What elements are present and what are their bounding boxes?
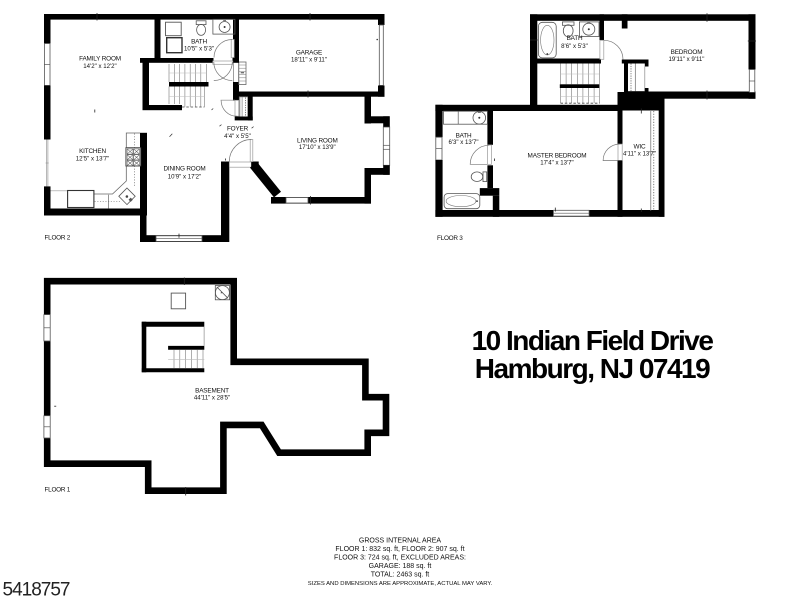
svg-text:FLOOR 1: FLOOR 1	[45, 487, 71, 494]
svg-text:10 Indian Field Drive: 10 Indian Field Drive	[472, 325, 714, 356]
svg-text:FAMILY ROOM: FAMILY ROOM	[79, 56, 121, 63]
svg-text:FLOOR 2: FLOOR 2	[45, 235, 71, 242]
svg-text:BATH: BATH	[567, 35, 583, 42]
svg-text:10'5" x 5'3": 10'5" x 5'3"	[184, 46, 214, 53]
svg-text:44'11" x 28'5": 44'11" x 28'5"	[194, 394, 230, 401]
svg-text:5418757: 5418757	[3, 580, 70, 600]
svg-text:TOTAL: 2463 sq. ft: TOTAL: 2463 sq. ft	[371, 572, 430, 579]
svg-text:FLOOR 1: 832 sq. ft, FLOOR 2:: FLOOR 1: 832 sq. ft, FLOOR 2: 907 sq. ft	[335, 546, 464, 553]
svg-text:GARAGE: 188 sq. ft: GARAGE: 188 sq. ft	[369, 563, 432, 570]
svg-text:BATH: BATH	[191, 39, 207, 46]
svg-text:Hamburg, NJ 07419: Hamburg, NJ 07419	[475, 353, 710, 384]
svg-text:6'3" x 13'7": 6'3" x 13'7"	[448, 139, 478, 146]
svg-text:10'9" x 17'2": 10'9" x 17'2"	[168, 173, 201, 180]
svg-text:MASTER BEDROOM: MASTER BEDROOM	[528, 152, 587, 159]
svg-text:4'11" x 13'7": 4'11" x 13'7"	[623, 151, 656, 158]
svg-text:14'2" x 12'2": 14'2" x 12'2"	[83, 63, 116, 70]
svg-text:17'10" x 13'9": 17'10" x 13'9"	[299, 144, 336, 151]
svg-text:19'11" x 9'11": 19'11" x 9'11"	[669, 56, 705, 63]
svg-text:18'11" x 9'11": 18'11" x 9'11"	[291, 56, 327, 63]
svg-text:DINING ROOM: DINING ROOM	[163, 166, 205, 173]
svg-text:SIZES AND DIMENSIONS ARE APPRO: SIZES AND DIMENSIONS ARE APPROXIMATE, AC…	[308, 581, 493, 587]
svg-text:FLOOR 3: FLOOR 3	[437, 235, 463, 242]
svg-text:8'6" x 5'3": 8'6" x 5'3"	[561, 43, 588, 50]
svg-text:12'5" x 13'7": 12'5" x 13'7"	[76, 155, 109, 162]
svg-text:17'4" x 13'7": 17'4" x 13'7"	[540, 160, 573, 167]
svg-text:FLOOR 3: 724 sq. ft, EXCLUDED: FLOOR 3: 724 sq. ft, EXCLUDED AREAS:	[334, 555, 466, 562]
svg-text:BEDROOM: BEDROOM	[671, 49, 703, 56]
svg-text:KITCHEN: KITCHEN	[79, 148, 106, 155]
svg-text:WIC: WIC	[634, 144, 646, 151]
svg-text:GROSS INTERNAL AREA: GROSS INTERNAL AREA	[359, 538, 442, 545]
svg-text:FOYER: FOYER	[227, 126, 249, 133]
svg-text:4'4" x 5'5": 4'4" x 5'5"	[224, 133, 251, 140]
